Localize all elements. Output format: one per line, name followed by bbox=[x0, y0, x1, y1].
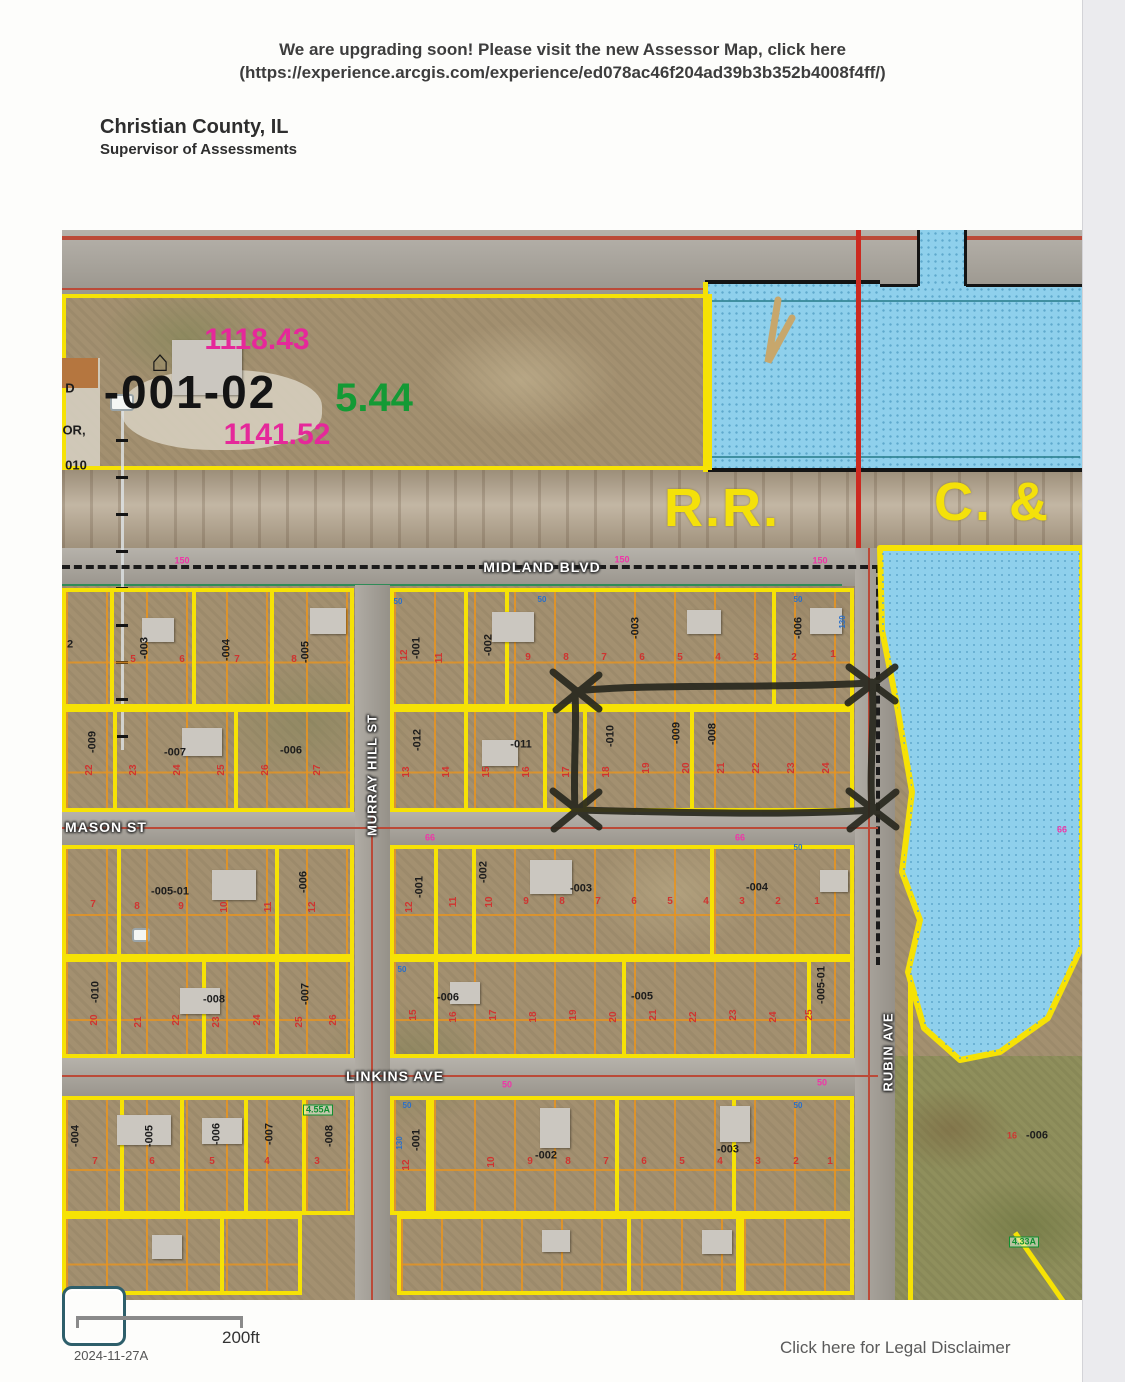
street-dim: 150 bbox=[812, 557, 827, 566]
parcel-line bbox=[807, 958, 811, 1058]
lot-number: 10 bbox=[485, 896, 495, 907]
building bbox=[182, 728, 222, 756]
lot-number: 11 bbox=[449, 897, 459, 908]
lot-number: 7 bbox=[92, 1157, 98, 1167]
lot-number: 15 bbox=[409, 1009, 419, 1020]
street-dim: 150 bbox=[614, 556, 629, 565]
lot-dim: 50 bbox=[794, 1102, 803, 1110]
survey-dash-rubin bbox=[876, 565, 880, 965]
lot-number: 5 bbox=[679, 1157, 685, 1167]
edge-label-or: OR, bbox=[62, 424, 85, 437]
lot-number: 23 bbox=[787, 762, 797, 773]
building bbox=[702, 1230, 732, 1254]
parcel-line bbox=[110, 588, 114, 708]
lot-number: 17 bbox=[489, 1009, 499, 1020]
value-bottom: 1141.52 bbox=[224, 420, 331, 450]
lot-number: 16 bbox=[449, 1011, 459, 1022]
lot-number: 7 bbox=[603, 1157, 609, 1167]
lot-number: 9 bbox=[525, 653, 531, 663]
lot-number: 6 bbox=[631, 897, 637, 907]
building bbox=[687, 610, 721, 634]
lot-number: 2 bbox=[775, 897, 781, 907]
water-shoreline bbox=[712, 456, 1080, 458]
lot-number: 6 bbox=[641, 1157, 647, 1167]
water-edge bbox=[964, 230, 967, 286]
lot-number: 4 bbox=[717, 1157, 723, 1167]
lot-number: 3 bbox=[753, 653, 759, 663]
lot-number: 18 bbox=[602, 766, 612, 777]
parcel-id: -001 bbox=[415, 876, 426, 898]
lot-number: 16 bbox=[1007, 1132, 1017, 1141]
parcel-id: -010 bbox=[91, 981, 102, 1003]
lot-number: 7 bbox=[234, 655, 240, 665]
lot-number: 3 bbox=[755, 1157, 761, 1167]
lot-number: 7 bbox=[595, 897, 601, 907]
parcel-line bbox=[690, 708, 694, 812]
lot-number: 11 bbox=[435, 653, 445, 664]
parcel-id: -008 bbox=[203, 995, 225, 1006]
parcel-id: -003 bbox=[140, 637, 151, 659]
parcel-id: -006 bbox=[280, 746, 302, 757]
lot-number: 3 bbox=[739, 897, 745, 907]
parcel-id: -004 bbox=[71, 1125, 82, 1147]
lot-number: 22 bbox=[752, 762, 762, 773]
lot-number: 9 bbox=[523, 897, 529, 907]
lot-number: 9 bbox=[178, 902, 184, 912]
lot-number: 11 bbox=[264, 902, 274, 913]
parcel-id: -009 bbox=[672, 722, 683, 744]
lot-number: 22 bbox=[689, 1011, 699, 1022]
block bbox=[62, 708, 354, 812]
scale-bar bbox=[76, 1316, 243, 1328]
lot-number: 24 bbox=[769, 1011, 779, 1022]
lot-number: 6 bbox=[639, 653, 645, 663]
lot-number: 10 bbox=[487, 1156, 497, 1167]
lot-number: 25 bbox=[805, 1009, 815, 1020]
lot-number: 20 bbox=[609, 1011, 619, 1022]
parcel-id: -001 bbox=[412, 637, 423, 659]
lot-number: 27 bbox=[313, 764, 323, 775]
parcel-id: -006 bbox=[437, 993, 459, 1004]
lot-number: 21 bbox=[649, 1009, 659, 1020]
legal-disclaimer-link[interactable]: Click here for Legal Disclaimer bbox=[780, 1338, 1011, 1358]
lot-number: 14 bbox=[442, 766, 452, 777]
water-upper-left bbox=[705, 282, 880, 470]
lot-number: 23 bbox=[729, 1009, 739, 1020]
parcel-id: -002 bbox=[484, 634, 495, 656]
parcel-id: -005 bbox=[631, 992, 653, 1003]
parcel-line bbox=[434, 958, 438, 1058]
parcel-id: -006 bbox=[1026, 1131, 1048, 1142]
lot-number: 8 bbox=[559, 897, 565, 907]
block bbox=[390, 588, 854, 708]
water-shoreline bbox=[712, 300, 1080, 302]
lot-number: 3 bbox=[314, 1157, 320, 1167]
water-channel bbox=[918, 230, 966, 286]
lot-number: 7 bbox=[90, 900, 96, 910]
lot-number: 9 bbox=[527, 1157, 533, 1167]
lot-number: 5 bbox=[209, 1157, 215, 1167]
lot-number: 22 bbox=[85, 764, 95, 775]
parcel-line bbox=[615, 1096, 619, 1215]
parcel-id: -008 bbox=[708, 723, 719, 745]
lot-number: 8 bbox=[291, 655, 297, 665]
parcel-id: -005 bbox=[301, 641, 312, 663]
building bbox=[492, 612, 534, 642]
parcel-id: -001 bbox=[412, 1129, 423, 1151]
rubin-centerline bbox=[868, 548, 870, 1300]
acreage-badge: 4.33A bbox=[1009, 1237, 1039, 1248]
parcel-id: -011 bbox=[510, 740, 531, 751]
building bbox=[542, 1230, 570, 1252]
scale-label: 200ft bbox=[222, 1328, 260, 1348]
lot-dim: 50 bbox=[538, 596, 547, 604]
lot-number: 25 bbox=[295, 1016, 305, 1027]
water-upper-right bbox=[880, 286, 1082, 470]
building bbox=[152, 1235, 182, 1259]
street-murray-hill: MURRAY HILL ST bbox=[366, 714, 379, 836]
street-dim: 66 bbox=[1057, 826, 1067, 835]
parcel-id: -009 bbox=[88, 731, 99, 753]
value-top: 1118.43 bbox=[204, 325, 309, 355]
parcel-line bbox=[543, 708, 547, 812]
lot-number: 26 bbox=[329, 1014, 339, 1025]
water-edge bbox=[880, 284, 918, 287]
lot-number: 12 bbox=[308, 901, 318, 912]
block bbox=[62, 1215, 302, 1295]
lot-number: 18 bbox=[529, 1011, 539, 1022]
acreage-badge: 4.55A bbox=[303, 1105, 333, 1116]
railroad-label: R.R. bbox=[664, 481, 780, 535]
building bbox=[212, 870, 256, 900]
lot-number: 19 bbox=[642, 762, 652, 773]
linkins-centerline bbox=[62, 1075, 878, 1077]
parcel-id: -002 bbox=[479, 861, 490, 883]
street-linkins: LINKINS AVE bbox=[346, 1069, 444, 1083]
lot-number: 23 bbox=[212, 1016, 222, 1027]
lot-dim: 50 bbox=[398, 966, 407, 974]
lot-number: 24 bbox=[173, 764, 183, 775]
street-rubin: RUBIN AVE bbox=[882, 1012, 895, 1091]
lot-number: 21 bbox=[134, 1016, 144, 1027]
railroad-label-2: C. & bbox=[934, 475, 1050, 529]
street-midland: MIDLAND BLVD bbox=[483, 560, 601, 574]
lot-number: 25 bbox=[217, 764, 227, 775]
parcel-id: -004 bbox=[746, 883, 768, 894]
parcel-id: 2 bbox=[67, 640, 73, 651]
lot-dim: 50 bbox=[394, 598, 403, 606]
rubin-ave-road bbox=[855, 548, 895, 1300]
lot-number: 6 bbox=[179, 655, 185, 665]
lot-number: 23 bbox=[129, 764, 139, 775]
parcel-id: -005-01 bbox=[817, 966, 828, 1004]
parcel-id: -012 bbox=[413, 729, 424, 751]
water-edge bbox=[705, 280, 880, 284]
parcel-line bbox=[627, 1215, 631, 1295]
parcel-line bbox=[710, 845, 714, 958]
lot-dim: 50 bbox=[794, 844, 803, 852]
parcel-line bbox=[772, 588, 776, 708]
block bbox=[390, 1096, 430, 1215]
lot-number: 16 bbox=[522, 766, 532, 777]
parcel-id: -002 bbox=[535, 1151, 557, 1162]
block bbox=[740, 1215, 854, 1295]
railroad-corridor bbox=[62, 470, 1082, 548]
house-icon: ⌂ bbox=[151, 347, 169, 377]
parcel-id: -010 bbox=[606, 725, 617, 747]
parcel-line bbox=[275, 958, 279, 1058]
parcel-line bbox=[622, 958, 626, 1058]
lot-number: 10 bbox=[220, 901, 230, 912]
parcel-line bbox=[270, 588, 274, 708]
parcel-line bbox=[464, 588, 468, 708]
parcel-line bbox=[180, 1096, 184, 1215]
lot-number: 21 bbox=[717, 762, 727, 773]
lot-number: 20 bbox=[682, 762, 692, 773]
parcel-id: -007 bbox=[301, 983, 312, 1005]
street-dim: 66 bbox=[735, 834, 745, 843]
lot-dim: 50 bbox=[794, 596, 803, 604]
parcel-line bbox=[583, 708, 587, 812]
linkins-ave-road bbox=[62, 1058, 878, 1096]
lot-number: 4 bbox=[715, 653, 721, 663]
upgrade-banner[interactable]: We are upgrading soon! Please visit the … bbox=[0, 38, 1125, 84]
lake-shore-line bbox=[908, 960, 913, 1300]
east-vegetation bbox=[895, 1056, 1082, 1300]
parcel-id: -008 bbox=[325, 1125, 336, 1147]
lot-number: 20 bbox=[90, 1014, 100, 1025]
lot-number: 22 bbox=[172, 1014, 182, 1025]
street-mason: MASON ST bbox=[65, 820, 147, 834]
water-edge bbox=[917, 230, 920, 286]
lot-number: 4 bbox=[264, 1157, 270, 1167]
red-section-line bbox=[856, 230, 861, 548]
parcel-id: -003 bbox=[717, 1145, 739, 1156]
lot-dim: 50 bbox=[403, 1102, 412, 1110]
parcel-id: -006 bbox=[299, 871, 310, 893]
lot-number: 6 bbox=[149, 1157, 155, 1167]
street-dim: 50 bbox=[502, 1081, 512, 1090]
street-dim: 150 bbox=[174, 557, 189, 566]
lot-number: 7 bbox=[601, 653, 607, 663]
lot-number: 1 bbox=[827, 1157, 833, 1167]
parcel-line bbox=[434, 845, 438, 958]
edge-label-d: D bbox=[65, 382, 74, 395]
lot-number: 5 bbox=[677, 653, 683, 663]
lot-number: 15 bbox=[482, 766, 492, 777]
lot-number: 1 bbox=[830, 650, 836, 660]
utility-line bbox=[62, 584, 842, 586]
lot-number: 26 bbox=[261, 764, 271, 775]
county-title: Christian County, IL bbox=[100, 116, 297, 139]
parcel-line bbox=[117, 958, 121, 1058]
parcel-id: -007 bbox=[265, 1123, 276, 1145]
lot-dim: 130 bbox=[839, 615, 847, 628]
lot-number: 5 bbox=[667, 897, 673, 907]
parcel-id: -005 bbox=[145, 1125, 156, 1147]
lot-number: 12 bbox=[405, 901, 415, 912]
parcel-id: -005-01 bbox=[151, 887, 189, 898]
lot-number: 8 bbox=[134, 902, 140, 912]
building bbox=[820, 870, 848, 892]
murray-centerline bbox=[371, 812, 373, 1300]
scan-page-edge bbox=[1082, 0, 1125, 1382]
lot-number: 24 bbox=[822, 762, 832, 773]
parcel-line bbox=[505, 588, 509, 708]
lot-number: 5 bbox=[130, 655, 136, 665]
county-subtitle: Supervisor of Assessments bbox=[100, 141, 297, 158]
lot-number: 1 bbox=[814, 897, 820, 907]
building bbox=[530, 860, 572, 894]
parcel-line bbox=[234, 708, 238, 812]
street-dim: 50 bbox=[817, 1079, 827, 1088]
county-header: Christian County, IL Supervisor of Asses… bbox=[100, 116, 297, 158]
acreage-large: 5.44 bbox=[335, 378, 413, 418]
mason-centerline bbox=[62, 827, 878, 829]
assessor-map[interactable]: 1118.43-001-025.441141.52R.R.C. &MIDLAND… bbox=[62, 230, 1082, 1300]
lot-number: 17 bbox=[562, 766, 572, 777]
water-edge bbox=[966, 284, 1082, 287]
lot-number: 2 bbox=[793, 1157, 799, 1167]
lot-number: 8 bbox=[565, 1157, 571, 1167]
street-dim: 66 bbox=[425, 834, 435, 843]
parcel-line bbox=[120, 1096, 124, 1215]
lot-number: 2 bbox=[791, 653, 797, 663]
block bbox=[390, 708, 854, 812]
lot-number: 8 bbox=[563, 653, 569, 663]
parcel-id: -004 bbox=[222, 639, 233, 661]
parcel-id: -007 bbox=[164, 748, 186, 759]
lot-number: 12 bbox=[400, 649, 410, 660]
lot-number: 13 bbox=[402, 766, 412, 777]
parcel-id: -006 bbox=[212, 1123, 223, 1145]
assessor-map-page: We are upgrading soon! Please visit the … bbox=[0, 0, 1125, 1382]
parcel-line bbox=[113, 708, 117, 812]
map-date: 2024-11-27A bbox=[74, 1348, 148, 1363]
lot-number: 4 bbox=[703, 897, 709, 907]
building bbox=[720, 1106, 750, 1142]
parcel-line bbox=[275, 845, 279, 958]
parcel-line bbox=[192, 588, 196, 708]
lot-number: 19 bbox=[569, 1009, 579, 1020]
parcel-line bbox=[464, 708, 468, 812]
block bbox=[390, 845, 854, 958]
survey-dash-midland bbox=[62, 565, 880, 569]
parcel-id: -003 bbox=[570, 884, 592, 895]
edge-label-010: 010 bbox=[65, 459, 87, 472]
parcel-id-large: -001-02 bbox=[104, 369, 277, 415]
upgrade-banner-line1[interactable]: We are upgrading soon! Please visit the … bbox=[0, 38, 1125, 61]
upgrade-banner-url[interactable]: (https://experience.arcgis.com/experienc… bbox=[0, 61, 1125, 84]
building bbox=[540, 1108, 570, 1148]
lot-number: 24 bbox=[253, 1014, 263, 1025]
building bbox=[310, 608, 346, 634]
parcel-line bbox=[117, 845, 121, 958]
lot-number: 12 bbox=[402, 1159, 412, 1170]
parcel-line bbox=[244, 1096, 248, 1215]
parcel-id: -003 bbox=[631, 617, 642, 639]
parcel-id: -006 bbox=[794, 617, 805, 639]
lot-dim: 130 bbox=[396, 1136, 404, 1149]
block bbox=[397, 1215, 740, 1295]
parcel-line bbox=[220, 1215, 224, 1295]
parcel-line bbox=[472, 845, 476, 958]
